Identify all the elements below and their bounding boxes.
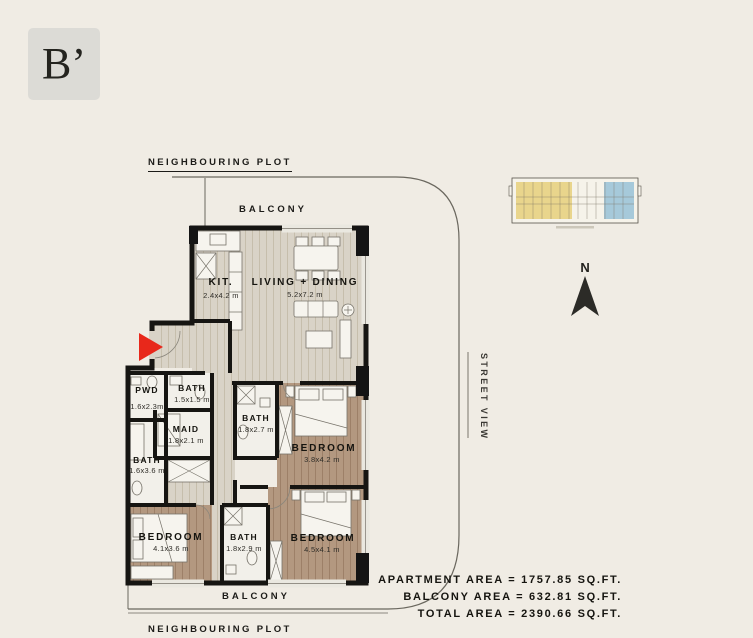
dining-chair <box>328 237 340 246</box>
area-summary: APARTMENT AREA = 1757.85 SQ.FT. BALCONY … <box>378 574 622 620</box>
north-arrow-needle <box>571 276 599 316</box>
bath-bottom-label: BATH <box>230 532 258 542</box>
balcony-area-text: BALCONY AREA = 632.81 SQ.FT. <box>403 591 622 603</box>
bedroom-left-label: BEDROOM <box>139 532 204 543</box>
bedroom-right-bottom-dim: 4.5x4.1 m <box>304 545 340 554</box>
nightstand <box>348 386 356 397</box>
living-dining-label: LIVING + DINING <box>252 277 359 288</box>
floor-plan-drawing: KIT. 2.4x4.2 m LIVING + DINING 5.2x7.2 m… <box>0 0 753 638</box>
pillow <box>299 389 319 400</box>
balcony-label-bottom: BALCONY <box>222 591 290 602</box>
kitchen-dim: 2.4x4.2 m <box>203 291 239 300</box>
maid-label: MAID <box>173 424 200 434</box>
bedroom-left-dim: 4.1x3.6 m <box>153 544 189 553</box>
north-arrow: N <box>571 260 599 316</box>
total-area-text: TOTAL AREA = 2390.66 SQ.FT. <box>418 608 622 620</box>
toilet <box>132 481 142 495</box>
nightstand <box>286 386 294 397</box>
bath-top-dim: 1.5x1.5 m <box>174 395 210 404</box>
sink <box>226 565 236 574</box>
bath-left-dim: 1.6x3.6 m <box>129 466 165 475</box>
north-letter: N <box>580 260 589 275</box>
bath-bottom-dim: 1.8x2.9 m <box>226 544 262 553</box>
nightstand <box>292 490 300 500</box>
pwd-dim: 1.6x2.3m <box>130 402 163 411</box>
dining-chair <box>296 237 308 246</box>
nightstand <box>352 490 360 500</box>
bedroom-right-top-dim: 3.8x4.2 m <box>304 455 340 464</box>
kitchen-label: KIT. <box>209 277 234 288</box>
dining-table <box>294 246 338 270</box>
bath-mid-label: BATH <box>242 413 270 423</box>
toilet <box>247 551 257 565</box>
bath-mid-dim: 1.8x2.7 m <box>238 425 274 434</box>
key-plan-caption <box>556 226 594 229</box>
dining-chair <box>312 237 324 246</box>
dresser <box>131 566 173 579</box>
balcony-label-top: BALCONY <box>239 204 307 215</box>
pwd-label: PWD <box>135 385 158 395</box>
maid-dim: 1.8x2.1 m <box>168 436 204 445</box>
key-plan <box>509 178 641 229</box>
street-view-marker: STREET VIEW <box>468 352 489 440</box>
pillow <box>305 492 324 502</box>
bedroom-right-bottom-label: BEDROOM <box>291 533 356 544</box>
floor-plan-page: B’ NEIGHBOURING PLOT NEIGHBOURING PLOT <box>0 0 753 638</box>
bedroom-right-top-label: BEDROOM <box>292 443 357 454</box>
key-plan-unit-highlight-yellow <box>516 182 572 219</box>
kitchen-sink <box>210 234 226 245</box>
key-plan-unit-highlight-blue <box>604 182 634 219</box>
living-dining-dim: 5.2x7.2 m <box>287 290 323 299</box>
sink <box>260 398 270 407</box>
street-view-label: STREET VIEW <box>479 353 489 440</box>
tv-console <box>340 320 351 358</box>
bath-left-label: BATH <box>133 455 161 465</box>
pillow <box>323 389 343 400</box>
pillow <box>327 492 346 502</box>
apartment-area-text: APARTMENT AREA = 1757.85 SQ.FT. <box>378 574 622 586</box>
coffee-table <box>306 331 332 348</box>
sofa <box>294 301 338 317</box>
sink <box>131 377 141 385</box>
bath-top-label: BATH <box>178 383 206 393</box>
